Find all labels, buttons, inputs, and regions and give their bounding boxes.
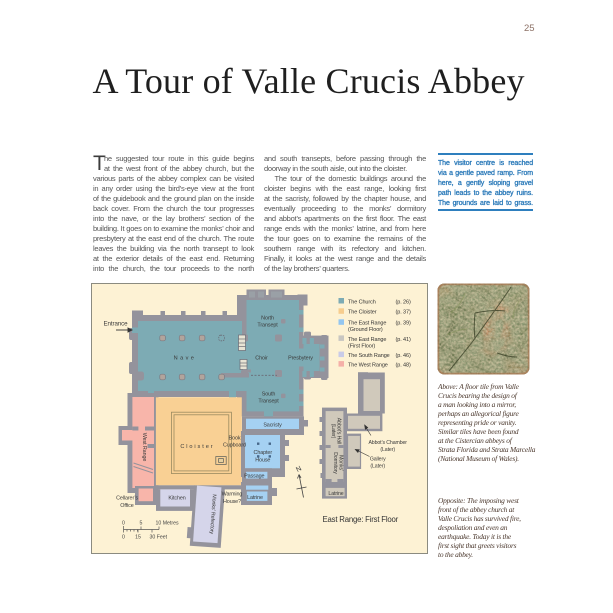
svg-text:0: 0 [122, 535, 125, 541]
svg-text:Cupboard: Cupboard [223, 443, 246, 449]
svg-text:Presbytery: Presbytery [288, 356, 313, 362]
svg-text:Transept: Transept [258, 399, 279, 405]
svg-text:(Ground Floor): (Ground Floor) [348, 327, 383, 333]
svg-text:Transept: Transept [257, 323, 278, 329]
svg-text:(p. 26): (p. 26) [396, 299, 411, 305]
svg-text:30 Feet: 30 Feet [150, 535, 168, 541]
svg-text:Dormitory: Dormitory [332, 452, 338, 474]
svg-text:(p. 41): (p. 41) [396, 337, 411, 343]
svg-text:(First Floor): (First Floor) [348, 343, 375, 349]
svg-text:(p. 46): (p. 46) [396, 353, 411, 359]
svg-text:Entrance: Entrance [104, 321, 129, 328]
svg-text:The East Range: The East Range [348, 337, 386, 343]
svg-text:South: South [262, 392, 276, 398]
svg-text:Kitchen: Kitchen [168, 496, 185, 502]
svg-text:The South Range: The South Range [348, 353, 390, 359]
svg-text:Chapter: Chapter [254, 450, 273, 456]
svg-text:Latrine: Latrine [328, 491, 343, 497]
svg-text:North: North [261, 316, 274, 322]
svg-text:Warming: Warming [222, 492, 243, 498]
svg-text:(Later): (Later) [370, 464, 385, 470]
svg-text:House?: House? [223, 499, 241, 505]
svg-text:(p. 37): (p. 37) [396, 310, 411, 316]
svg-text:Passage: Passage [244, 474, 264, 480]
svg-text:The West Range: The West Range [348, 363, 388, 369]
svg-text:Office: Office [120, 503, 133, 509]
svg-text:(Later): (Later) [380, 447, 395, 453]
svg-text:The Church: The Church [348, 299, 376, 305]
svg-text:The East Range: The East Range [348, 321, 386, 327]
svg-text:5: 5 [140, 521, 143, 527]
svg-text:West Range: West Range [141, 433, 147, 462]
svg-text:The Cloister: The Cloister [348, 310, 377, 316]
svg-text:(p. 39): (p. 39) [396, 321, 411, 327]
svg-text:East Range: First Floor: East Range: First Floor [323, 515, 399, 524]
svg-text:Abbot’s Chamber: Abbot’s Chamber [368, 440, 407, 446]
svg-text:Latrine: Latrine [247, 495, 263, 501]
svg-text:Cloister: Cloister [180, 444, 214, 450]
svg-text:(Later): (Later) [330, 424, 336, 439]
svg-text:Nave: Nave [174, 356, 197, 362]
svg-text:10 Metres: 10 Metres [156, 521, 179, 527]
svg-text:Sacristy: Sacristy [263, 423, 282, 429]
svg-text:House: House [255, 458, 270, 464]
svg-text:Choir: Choir [255, 356, 268, 362]
svg-text:Cellarer’s: Cellarer’s [116, 496, 138, 502]
svg-text:Book: Book [229, 436, 241, 442]
svg-text:0: 0 [122, 521, 125, 527]
svg-text:Gallery: Gallery [370, 457, 386, 463]
svg-text:(p. 48): (p. 48) [396, 363, 411, 369]
svg-text:15: 15 [135, 535, 141, 541]
